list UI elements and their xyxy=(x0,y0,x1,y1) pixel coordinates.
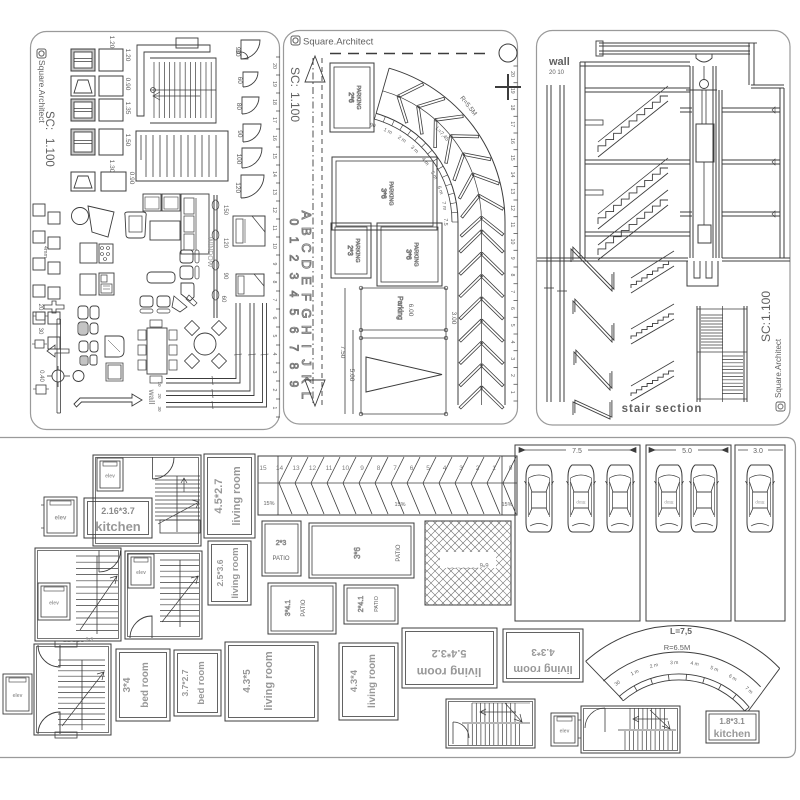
svg-text:Stop: Stop xyxy=(755,500,765,505)
svg-text:120: 120 xyxy=(234,182,241,193)
svg-text:1.50: 1.50 xyxy=(124,134,131,147)
svg-text:1.100: 1.100 xyxy=(43,138,55,167)
svg-text:8: 8 xyxy=(377,465,381,472)
svg-text:18: 18 xyxy=(271,99,277,105)
svg-text:5: 5 xyxy=(271,335,277,338)
svg-text:7: 7 xyxy=(287,345,301,352)
svg-text:PATIO: PATIO xyxy=(272,556,289,562)
svg-text:living room: living room xyxy=(513,663,573,675)
svg-text:3*4: 3*4 xyxy=(122,677,133,692)
svg-text:15%: 15% xyxy=(394,502,405,508)
svg-text:3: 3 xyxy=(287,273,301,280)
svg-text:SC:: SC: xyxy=(43,111,55,130)
svg-text:20: 20 xyxy=(509,71,515,77)
svg-text:90: 90 xyxy=(236,130,243,138)
svg-text:3 m: 3 m xyxy=(670,660,679,666)
svg-text:15: 15 xyxy=(509,155,515,161)
svg-text:15%: 15% xyxy=(501,502,512,508)
svg-text:16: 16 xyxy=(509,138,515,144)
svg-text:9: 9 xyxy=(271,263,277,266)
svg-text:5.00: 5.00 xyxy=(348,369,355,382)
svg-text:9: 9 xyxy=(287,381,301,388)
svg-text:5: 5 xyxy=(426,465,430,472)
svg-text:SC:: SC: xyxy=(759,322,773,342)
svg-text:2: 2 xyxy=(287,255,301,262)
svg-text:20 10: 20 10 xyxy=(549,70,565,76)
svg-text:19: 19 xyxy=(271,81,277,87)
svg-text:10: 10 xyxy=(342,465,350,472)
svg-text:PARKING: PARKING xyxy=(413,242,419,266)
svg-text:19: 19 xyxy=(509,88,515,94)
svg-text:12: 12 xyxy=(271,207,277,213)
svg-text:2.5*3.6: 2.5*3.6 xyxy=(215,559,225,586)
svg-text:6: 6 xyxy=(287,327,301,334)
svg-text:16: 16 xyxy=(271,135,277,141)
svg-text:Square.Architect: Square.Architect xyxy=(303,37,374,48)
svg-text:5: 5 xyxy=(509,324,515,327)
svg-text:150: 150 xyxy=(222,205,228,216)
svg-text:living room: living room xyxy=(230,547,241,598)
svg-text:3: 3 xyxy=(509,357,515,360)
svg-text:11: 11 xyxy=(326,465,333,472)
svg-text:14: 14 xyxy=(276,465,284,472)
svg-text:15: 15 xyxy=(259,465,267,472)
svg-text:3*4.1: 3*4.1 xyxy=(285,600,292,616)
svg-text:12: 12 xyxy=(509,205,515,211)
svg-text:4: 4 xyxy=(509,341,515,344)
svg-text:bed room: bed room xyxy=(196,661,207,704)
svg-text:1.100: 1.100 xyxy=(288,92,302,122)
svg-text:2*4.1: 2*4.1 xyxy=(358,596,365,612)
svg-text:0.90: 0.90 xyxy=(128,172,135,185)
svg-text:living room: living room xyxy=(263,651,275,711)
svg-text:13: 13 xyxy=(271,189,277,195)
svg-text:L=7,5: L=7,5 xyxy=(670,626,692,636)
svg-text:5: 5 xyxy=(287,309,301,316)
svg-text:3.7*2.7: 3.7*2.7 xyxy=(180,669,190,696)
svg-text:4.3*5: 4.3*5 xyxy=(242,669,253,693)
svg-text:8: 8 xyxy=(509,274,515,277)
svg-text:PATIO: PATIO xyxy=(301,599,307,616)
svg-text:PARKING: PARKING xyxy=(355,85,361,109)
svg-text:3*6: 3*6 xyxy=(380,188,387,199)
svg-text:7.5: 7.5 xyxy=(572,448,582,455)
svg-text:Stop: Stop xyxy=(576,500,586,505)
svg-text:8: 8 xyxy=(271,281,277,284)
svg-text:18: 18 xyxy=(509,105,515,111)
svg-text:3.00: 3.00 xyxy=(450,312,457,325)
svg-text:12: 12 xyxy=(309,465,317,472)
svg-text:4.3*3: 4.3*3 xyxy=(531,646,555,657)
svg-text:1: 1 xyxy=(287,237,301,244)
svg-text:4mm: 4mm xyxy=(42,246,48,259)
svg-text:living room: living room xyxy=(231,466,243,526)
svg-text:13: 13 xyxy=(509,188,515,194)
svg-text:5.0: 5.0 xyxy=(682,448,692,455)
svg-text:6.00: 6.00 xyxy=(407,304,414,317)
svg-text:20: 20 xyxy=(271,63,277,69)
svg-text:15%: 15% xyxy=(263,501,274,507)
svg-text:90: 90 xyxy=(222,273,228,280)
svg-text:elev: elev xyxy=(136,570,146,576)
svg-text:wall: wall xyxy=(548,56,570,68)
svg-text:living room: living room xyxy=(417,665,482,679)
svg-text:2: 2 xyxy=(271,389,277,392)
svg-text:14: 14 xyxy=(271,171,277,177)
svg-text:10: 10 xyxy=(271,243,277,249)
svg-text:elev: elev xyxy=(13,693,23,699)
svg-text:R=6.5M: R=6.5M xyxy=(664,643,690,652)
svg-text:60: 60 xyxy=(236,77,243,85)
svg-text:6: 6 xyxy=(271,317,277,320)
svg-text:elev: elev xyxy=(49,601,59,607)
svg-text:1.8*3.1: 1.8*3.1 xyxy=(719,717,745,726)
svg-text:0.40: 0.40 xyxy=(38,370,44,382)
svg-text:2*3: 2*3 xyxy=(276,540,287,547)
svg-text:4.3*4: 4.3*4 xyxy=(349,669,360,692)
svg-text:Parking: Parking xyxy=(396,296,403,320)
svg-text:60: 60 xyxy=(220,296,226,303)
svg-text:3*6: 3*6 xyxy=(405,249,412,260)
svg-text:14: 14 xyxy=(509,172,515,178)
svg-text:120: 120 xyxy=(222,238,228,249)
svg-text:17: 17 xyxy=(271,117,277,123)
svg-text:10: 10 xyxy=(509,239,515,245)
svg-text:9: 9 xyxy=(360,465,364,472)
svg-text:PARKING: PARKING xyxy=(388,181,394,205)
svg-text:1.20: 1.20 xyxy=(124,49,131,62)
svg-text:6: 6 xyxy=(509,307,515,310)
svg-text:PARKING: PARKING xyxy=(354,238,360,262)
svg-text:4 m: 4 m xyxy=(690,661,699,668)
svg-text:7.50: 7.50 xyxy=(339,346,346,359)
svg-text:2*6: 2*6 xyxy=(347,92,354,103)
svg-text:3: 3 xyxy=(271,371,277,374)
svg-text:15: 15 xyxy=(271,153,277,159)
svg-text:7: 7 xyxy=(271,299,277,302)
svg-text:elev: elev xyxy=(105,474,115,480)
svg-text:kitchen: kitchen xyxy=(714,728,751,740)
svg-text:stair section: stair section xyxy=(622,403,703,415)
svg-text:PATIO: PATIO xyxy=(374,595,380,611)
svg-text:6*6 ⁀⁀⁀⁀ ⁀⁀: 6*6 ⁀⁀⁀⁀ ⁀⁀ xyxy=(446,561,488,569)
svg-text:Stop: Stop xyxy=(664,500,674,505)
svg-text:3*6: 3*6 xyxy=(353,546,362,559)
svg-text:20: 20 xyxy=(37,304,43,311)
svg-text:4: 4 xyxy=(271,353,277,356)
svg-text:elev: elev xyxy=(55,516,67,522)
svg-text:WINDOW: WINDOW xyxy=(206,237,213,268)
svg-text:wall: wall xyxy=(147,388,156,404)
svg-text:SC:: SC: xyxy=(288,67,302,87)
svg-text:7.5: 7.5 xyxy=(442,218,448,225)
svg-text:10: 10 xyxy=(157,381,162,387)
svg-text:2: 2 xyxy=(509,374,515,377)
svg-text:2.16*3.7: 2.16*3.7 xyxy=(101,506,135,516)
svg-text:B: B xyxy=(299,227,314,236)
svg-text:4.5*2.7: 4.5*2.7 xyxy=(213,479,225,514)
svg-text:1.35: 1.35 xyxy=(124,102,131,115)
svg-text:0: 0 xyxy=(287,219,301,226)
svg-text:3.0: 3.0 xyxy=(753,448,763,455)
svg-text:kitchen: kitchen xyxy=(95,519,141,534)
svg-text:11: 11 xyxy=(271,225,277,230)
svg-text:20: 20 xyxy=(157,393,162,399)
svg-text:elev: elev xyxy=(560,729,570,735)
svg-text:bed room: bed room xyxy=(140,662,151,708)
svg-text:100: 100 xyxy=(235,154,242,165)
svg-text:PATIO: PATIO xyxy=(396,544,402,561)
svg-text:13: 13 xyxy=(292,465,300,472)
svg-text:7: 7 xyxy=(509,290,515,293)
svg-text:30: 30 xyxy=(157,406,162,412)
svg-text:1.100: 1.100 xyxy=(759,291,773,321)
svg-text:30: 30 xyxy=(37,328,43,335)
svg-text:5.4*3.2: 5.4*3.2 xyxy=(432,647,467,659)
svg-text:living room: living room xyxy=(367,654,378,708)
svg-text:0.90: 0.90 xyxy=(124,78,131,91)
svg-text:17: 17 xyxy=(509,121,515,127)
svg-text:11: 11 xyxy=(509,222,515,227)
svg-text:1.20: 1.20 xyxy=(108,36,115,49)
svg-text:1.30: 1.30 xyxy=(108,160,115,173)
svg-text:C: C xyxy=(299,243,314,252)
svg-text:Square.Architect: Square.Architect xyxy=(774,338,783,398)
svg-text:30: 30 xyxy=(234,49,241,57)
svg-text:80: 80 xyxy=(235,103,242,111)
svg-text:9: 9 xyxy=(509,257,515,260)
svg-text:1: 1 xyxy=(509,391,515,394)
svg-text:2*3: 2*3 xyxy=(346,245,353,256)
svg-text:4: 4 xyxy=(287,291,301,298)
svg-text:8: 8 xyxy=(287,363,301,370)
svg-text:1: 1 xyxy=(271,407,277,410)
